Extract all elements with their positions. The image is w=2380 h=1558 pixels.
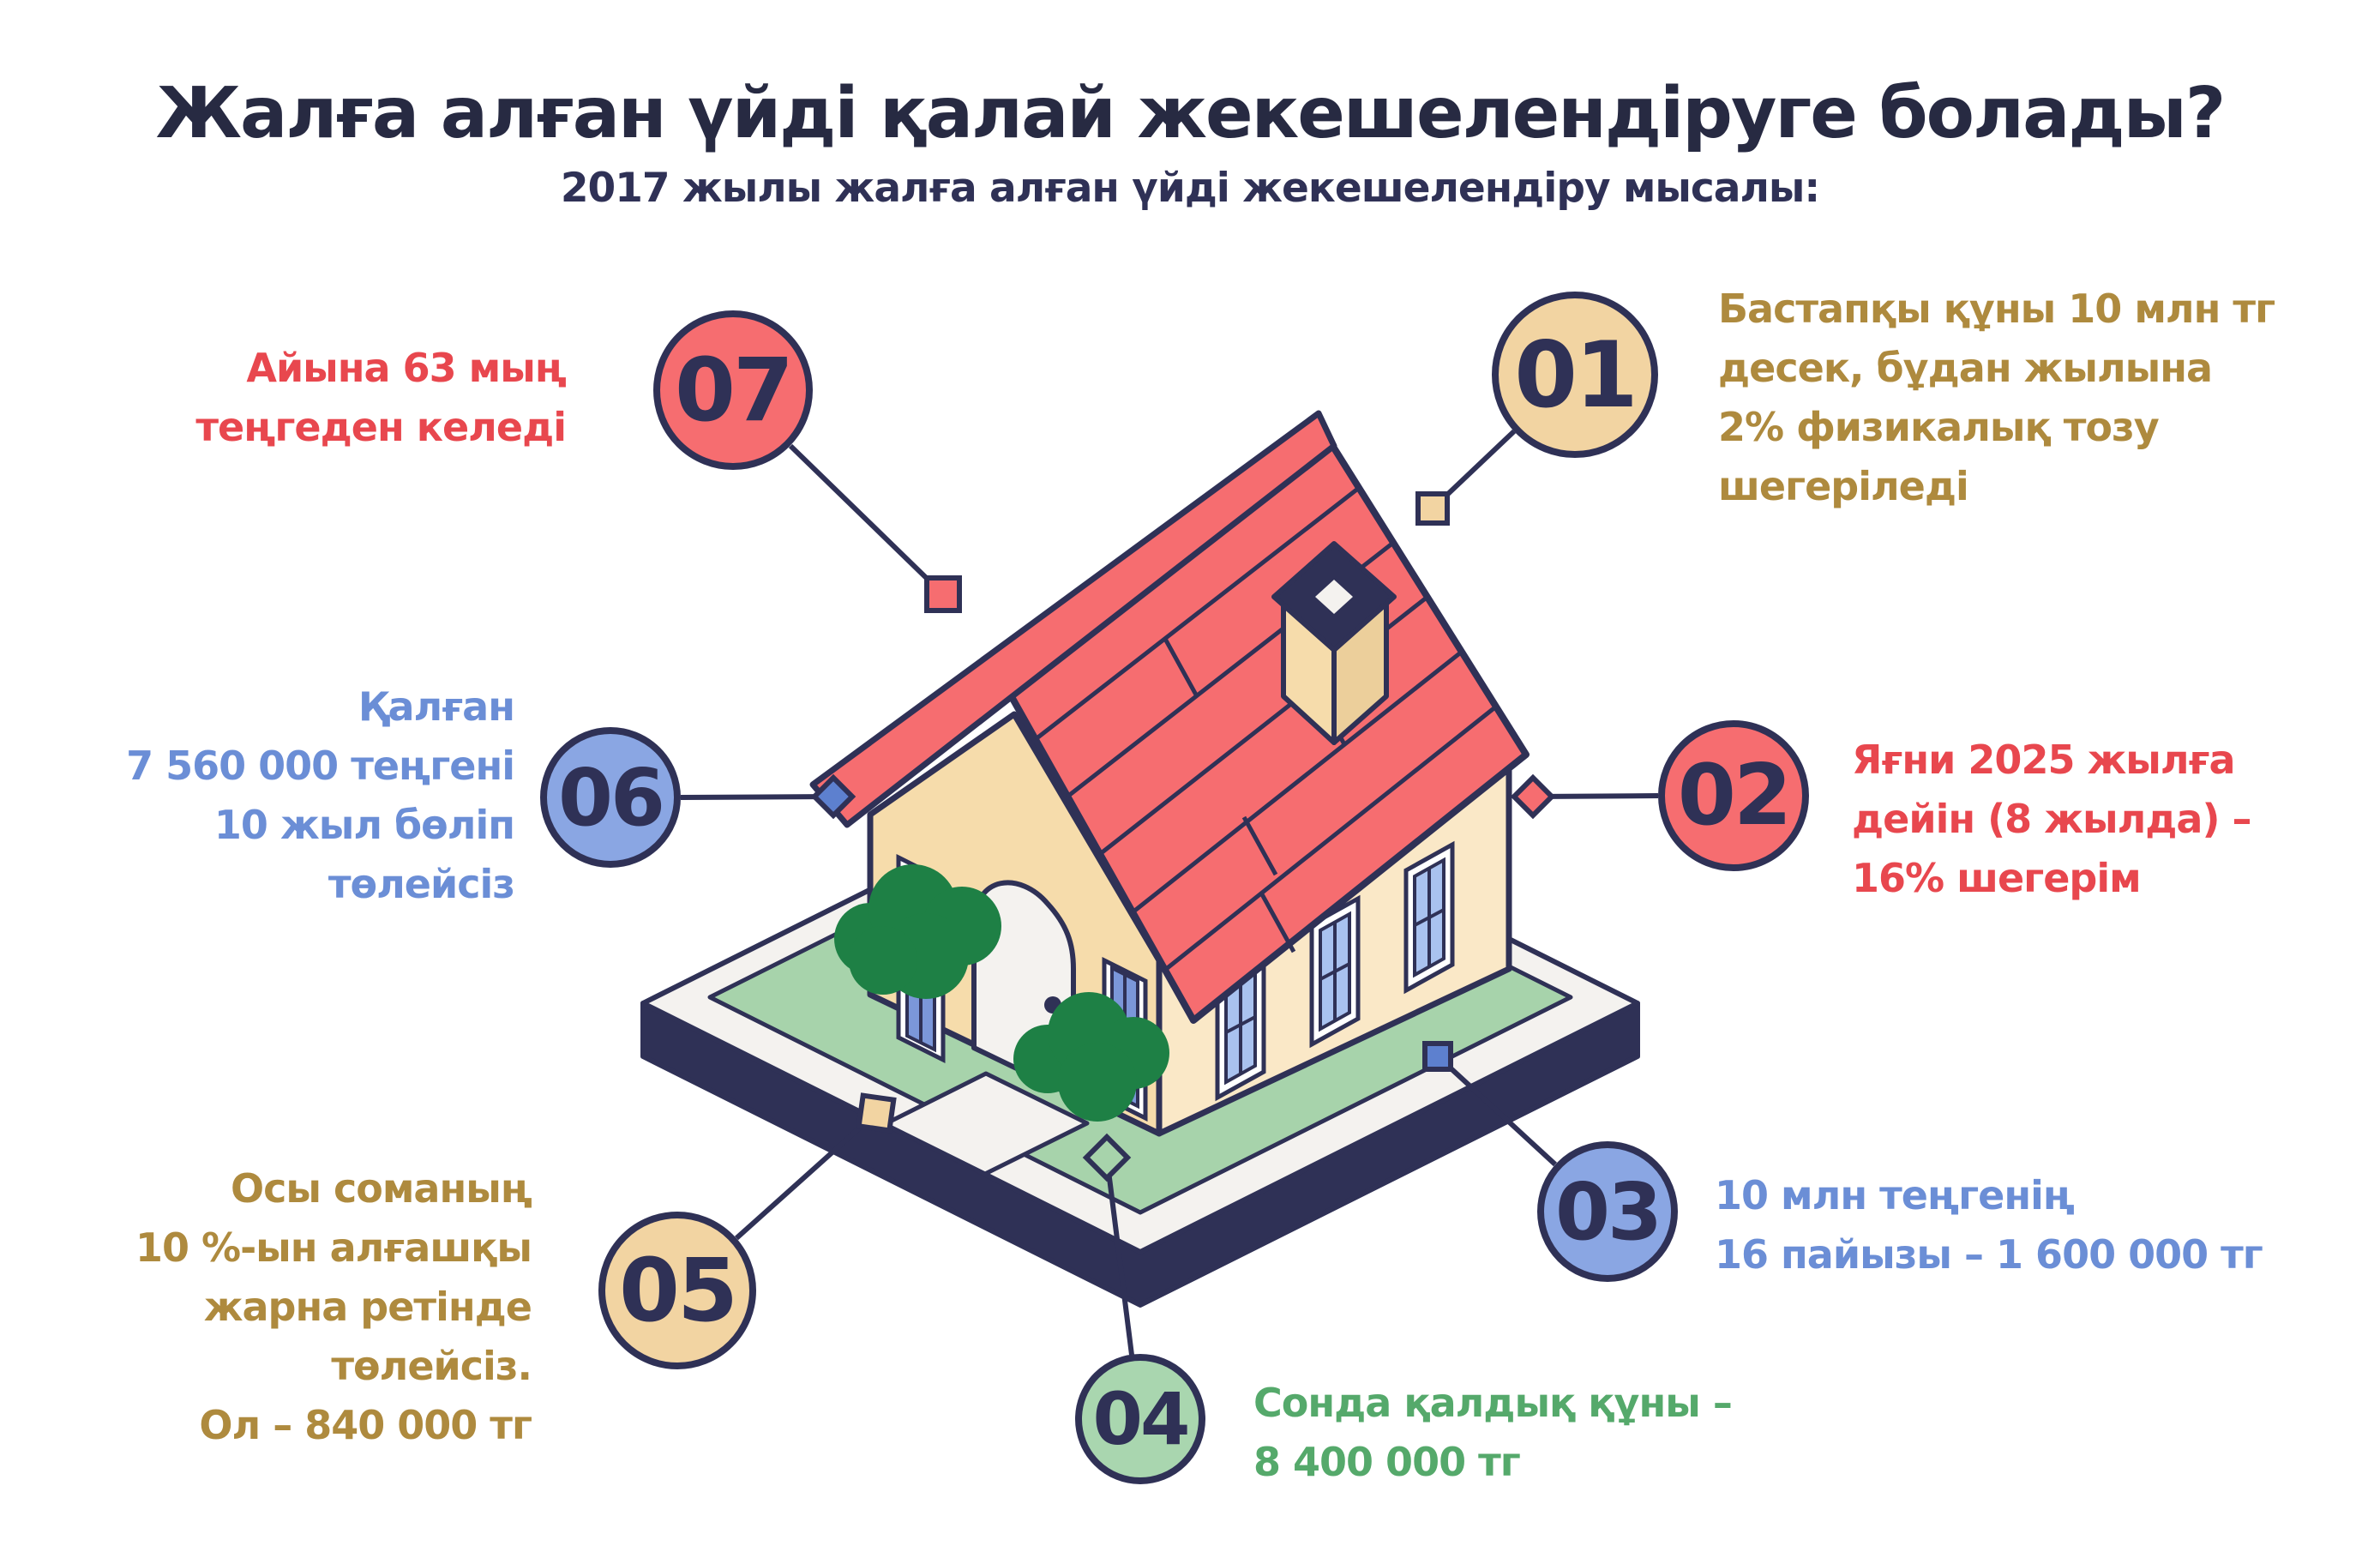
anchor-marker-01 xyxy=(1418,494,1447,523)
step-03-text: 10 млн теңгенің 16 пайызы – 1 600 000 тг xyxy=(1715,1166,2263,1284)
step-04-text: Сонда қалдық құны – 8 400 000 тг xyxy=(1253,1374,1732,1492)
infographic-canvas: Жалға алған үйді қалай жекешелендіруге б… xyxy=(0,0,2380,1558)
window-icon xyxy=(1406,845,1452,990)
anchor-marker-02 xyxy=(1514,778,1552,815)
step-02-badge: 02 xyxy=(1658,720,1809,871)
step-06-badge: 06 xyxy=(540,727,681,868)
step-07-text: Айына 63 мың теңгеден келеді xyxy=(195,339,566,457)
anchor-marker-05 xyxy=(859,1096,894,1131)
page-subtitle: 2017 жылы жалға алған үйді жекешелендіру… xyxy=(0,165,2380,212)
page-title: Жалға алған үйді қалай жекешелендіруге б… xyxy=(0,73,2380,154)
step-01-text: Бастапқы құны 10 млн тг десек, бұдан жыл… xyxy=(1718,280,2275,516)
step-05-badge: 05 xyxy=(598,1212,756,1369)
step-06-number: 06 xyxy=(558,752,663,844)
step-05-text: Осы соманың 10 %-ын алғашқы жарна ретінд… xyxy=(135,1159,532,1455)
step-03-badge: 03 xyxy=(1537,1141,1678,1282)
step-05-number: 05 xyxy=(619,1240,736,1342)
step-06-text: Қалған 7 560 000 теңгені 10 жыл бөліп тө… xyxy=(126,677,514,914)
anchor-marker-03 xyxy=(1425,1044,1451,1069)
step-02-number: 02 xyxy=(1678,747,1789,845)
connector-line-07 xyxy=(790,446,943,594)
step-01-number: 01 xyxy=(1514,322,1636,428)
step-02-text: Яғни 2025 жылға дейін (8 жылда) – 16% ше… xyxy=(1852,731,2251,908)
step-07-badge: 07 xyxy=(653,310,813,470)
step-04-badge: 04 xyxy=(1075,1354,1205,1484)
step-04-number: 04 xyxy=(1093,1377,1188,1461)
step-03-number: 03 xyxy=(1555,1166,1660,1258)
step-07-number: 07 xyxy=(675,340,791,442)
connector-line-06 xyxy=(681,797,833,797)
step-01-badge: 01 xyxy=(1492,292,1658,458)
anchor-marker-07 xyxy=(927,578,959,611)
